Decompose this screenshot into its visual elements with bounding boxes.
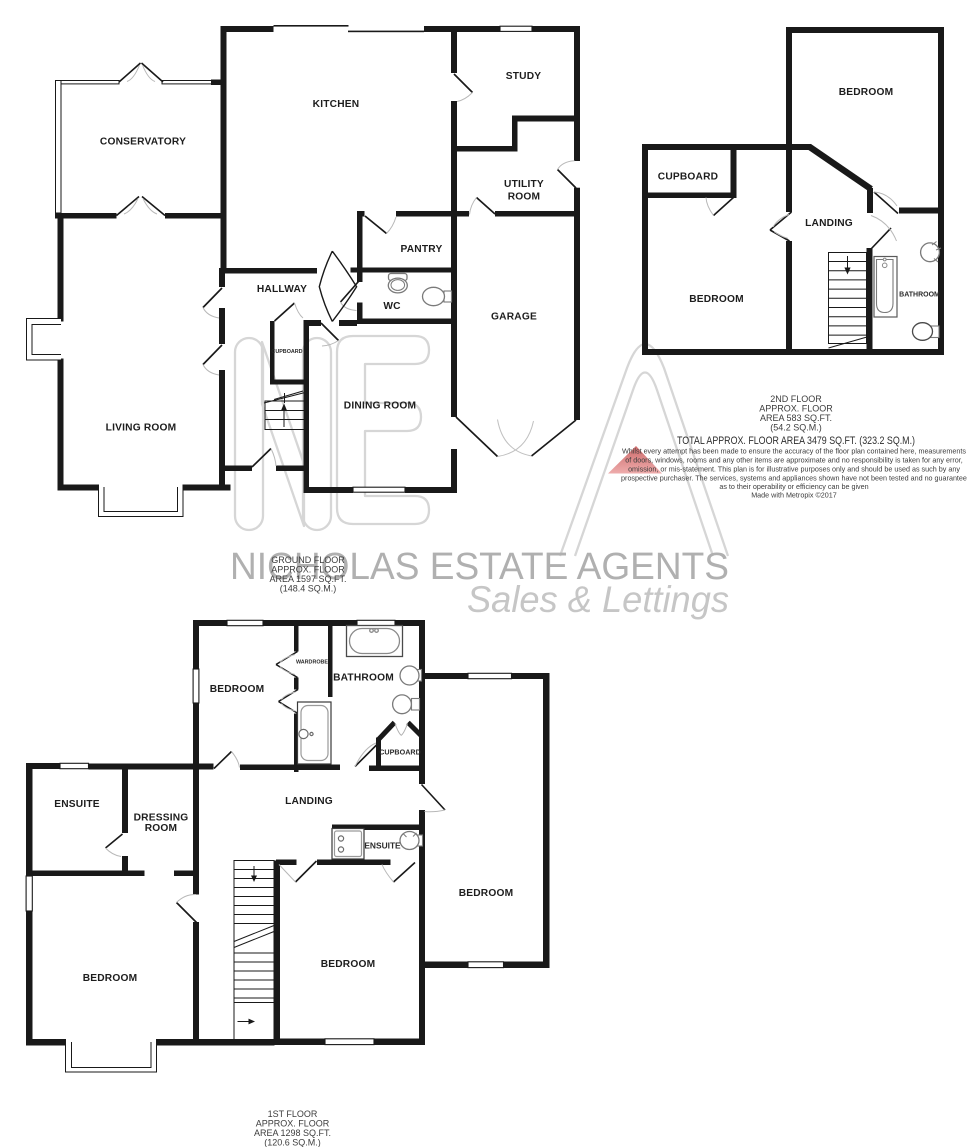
svg-text:GARAGE: GARAGE xyxy=(491,312,537,323)
svg-text:BATHROOM: BATHROOM xyxy=(899,292,940,299)
svg-text:PANTRY: PANTRY xyxy=(401,244,443,255)
svg-text:BEDROOM: BEDROOM xyxy=(839,87,894,98)
svg-text:STUDY: STUDY xyxy=(506,71,542,82)
svg-text:of doors, windows, rooms and a: of doors, windows, rooms and any other i… xyxy=(625,456,963,465)
svg-text:DRESSING: DRESSING xyxy=(134,813,189,824)
svg-text:ROOM: ROOM xyxy=(508,192,541,203)
svg-text:Whilst every attempt has been: Whilst every attempt has been made to en… xyxy=(622,447,966,456)
svg-text:BEDROOM: BEDROOM xyxy=(689,294,744,305)
svg-text:APPROX. FLOOR: APPROX. FLOOR xyxy=(256,1119,330,1129)
svg-text:WARDROBE: WARDROBE xyxy=(296,660,328,666)
svg-text:BATHROOM: BATHROOM xyxy=(333,673,394,684)
svg-text:GROUND FLOOR: GROUND FLOOR xyxy=(271,555,345,565)
svg-text:2ND FLOOR: 2ND FLOOR xyxy=(770,394,822,404)
svg-text:LANDING: LANDING xyxy=(285,796,333,807)
svg-text:CUPBOARD: CUPBOARD xyxy=(658,172,718,183)
svg-text:(54.2 SQ.M.): (54.2 SQ.M.) xyxy=(770,423,822,433)
svg-text:HALLWAY: HALLWAY xyxy=(257,284,307,295)
svg-text:TOTAL APPROX. FLOOR AREA 3479: TOTAL APPROX. FLOOR AREA 3479 SQ.FT. (32… xyxy=(677,435,915,447)
svg-text:CUPBOARD: CUPBOARD xyxy=(379,748,421,757)
svg-text:AREA 1597 SQ.FT.: AREA 1597 SQ.FT. xyxy=(269,574,346,584)
svg-text:APPROX. FLOOR: APPROX. FLOOR xyxy=(759,404,833,414)
svg-text:AREA 583 SQ.FT.: AREA 583 SQ.FT. xyxy=(760,413,832,423)
svg-text:BEDROOM: BEDROOM xyxy=(459,888,514,899)
svg-text:BEDROOM: BEDROOM xyxy=(83,973,138,984)
svg-text:BEDROOM: BEDROOM xyxy=(321,959,376,970)
svg-text:UTILITY: UTILITY xyxy=(504,179,544,190)
svg-text:BEDROOM: BEDROOM xyxy=(210,684,265,695)
svg-text:ENSUITE: ENSUITE xyxy=(364,841,401,851)
svg-text:DINING ROOM: DINING ROOM xyxy=(344,401,416,412)
svg-text:Sales & Lettings: Sales & Lettings xyxy=(467,579,729,620)
svg-text:LIVING ROOM: LIVING ROOM xyxy=(106,423,177,434)
svg-text:(120.6 SQ.M.): (120.6 SQ.M.) xyxy=(264,1138,321,1147)
svg-text:KITCHEN: KITCHEN xyxy=(313,99,360,110)
svg-text:1ST FLOOR: 1ST FLOOR xyxy=(268,1109,318,1119)
svg-text:(148.4 SQ.M.): (148.4 SQ.M.) xyxy=(280,584,337,594)
svg-text:CONSERVATORY: CONSERVATORY xyxy=(100,137,186,148)
svg-text:Made with Metropix ©2017: Made with Metropix ©2017 xyxy=(751,491,837,500)
svg-text:APPROX. FLOOR: APPROX. FLOOR xyxy=(271,565,345,575)
svg-text:ROOM: ROOM xyxy=(145,823,178,834)
svg-text:AREA 1298 SQ.FT.: AREA 1298 SQ.FT. xyxy=(254,1128,331,1138)
svg-text:LANDING: LANDING xyxy=(805,218,853,229)
svg-text:WC: WC xyxy=(383,301,401,312)
svg-text:omission, or mis-statement. Th: omission, or mis-statement. This plan is… xyxy=(628,465,960,474)
svg-text:CUPBOARD: CUPBOARD xyxy=(271,349,302,355)
svg-text:ENSUITE: ENSUITE xyxy=(54,799,100,810)
